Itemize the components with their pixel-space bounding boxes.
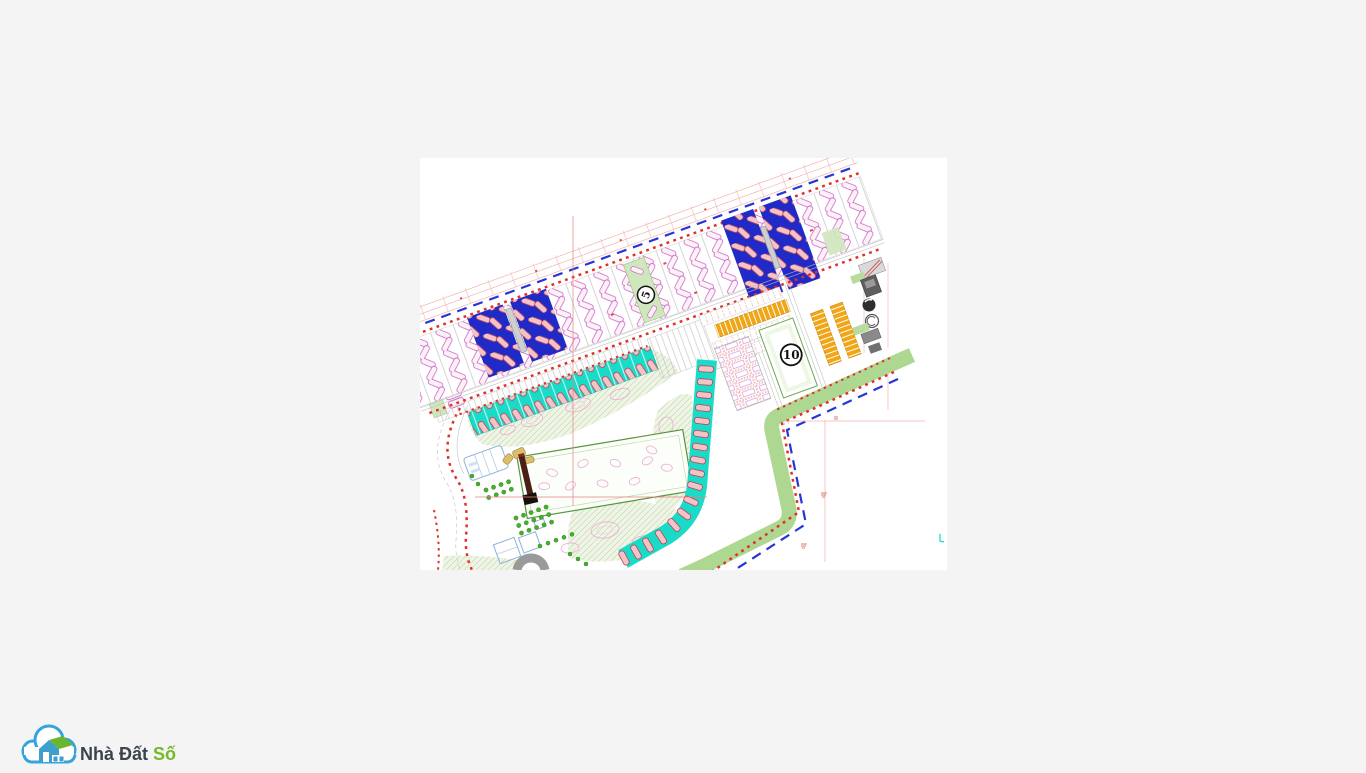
plan-image: 5 (420, 158, 947, 570)
svg-text:10: 10 (783, 348, 800, 362)
block10: 10 (759, 318, 817, 398)
road-loop (517, 558, 545, 570)
cloud-house-icon (23, 726, 75, 762)
park-hatch-area (442, 556, 516, 571)
west-boundary (434, 405, 472, 570)
site-plan-drawing: 5 (420, 158, 947, 570)
site-logo: Nhà Đất Số (12, 724, 242, 768)
logo-graphic: Nhà Đất Số (12, 724, 242, 768)
boundary-red-dotted-se (688, 372, 894, 570)
logo-text: Nhà Đất Số (80, 744, 176, 764)
orange-lot-rows-east (810, 302, 861, 365)
north-mark (940, 534, 944, 542)
